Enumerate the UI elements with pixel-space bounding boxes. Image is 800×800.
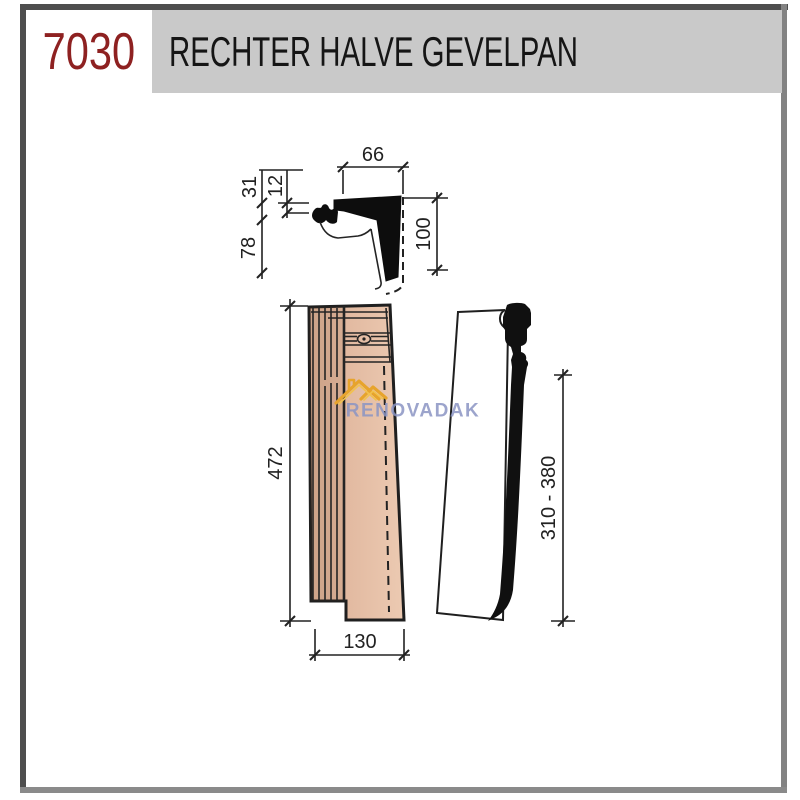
dim-label-lower-left: 78 xyxy=(238,237,260,259)
watermark-text: RENOVADAK xyxy=(346,401,481,422)
top-view-drawing: 472 130 xyxy=(265,299,410,661)
dim-label-width: 130 xyxy=(343,631,376,653)
side-view-drawing: 310 - 380 xyxy=(437,303,575,627)
cross-section-drawing: 66 31 12 78 100 xyxy=(238,144,448,294)
side-view-face xyxy=(437,310,508,620)
dim-label-right-height: 100 xyxy=(413,217,435,250)
dim-label-upper-left: 31 xyxy=(239,176,261,198)
cross-section-profile xyxy=(334,196,401,281)
dim-label-length: 472 xyxy=(265,446,287,479)
product-drawing-page: 7030 RECHTER HALVE GEVELPAN xyxy=(0,0,800,800)
dim-label-batten-range: 310 - 380 xyxy=(538,456,560,541)
dim-label-thickness: 12 xyxy=(265,175,287,197)
technical-drawing: 66 31 12 78 100 xyxy=(0,0,800,800)
under-surface-line xyxy=(320,222,371,238)
interlock-strip xyxy=(309,307,344,602)
dim-label-top-width: 66 xyxy=(362,144,384,166)
